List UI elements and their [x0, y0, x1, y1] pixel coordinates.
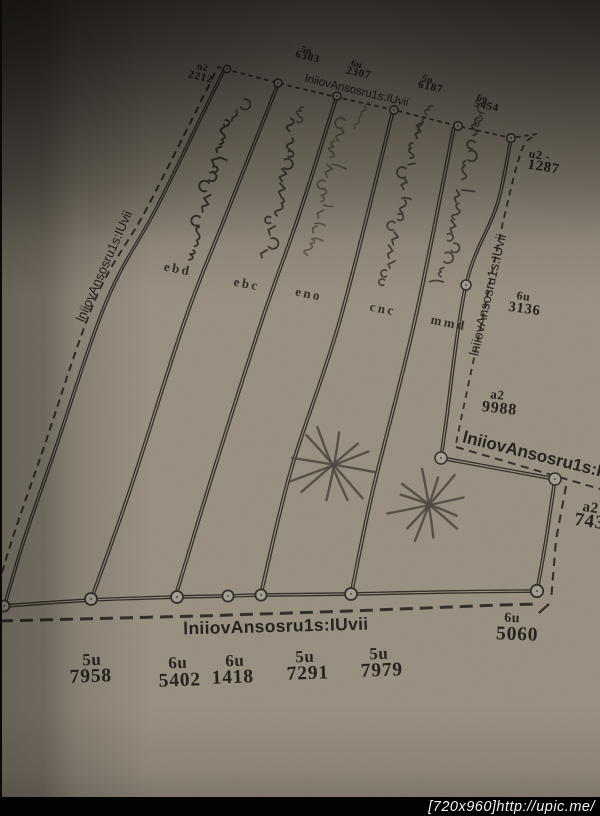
- svg-text:7958: 7958: [69, 665, 112, 687]
- svg-text:743: 743: [573, 509, 600, 534]
- svg-text:5402: 5402: [158, 669, 201, 691]
- svg-text:5060: 5060: [496, 623, 539, 645]
- svg-text:7291: 7291: [286, 662, 329, 684]
- svg-text:7979: 7979: [360, 659, 403, 681]
- svg-text:1418: 1418: [211, 666, 254, 688]
